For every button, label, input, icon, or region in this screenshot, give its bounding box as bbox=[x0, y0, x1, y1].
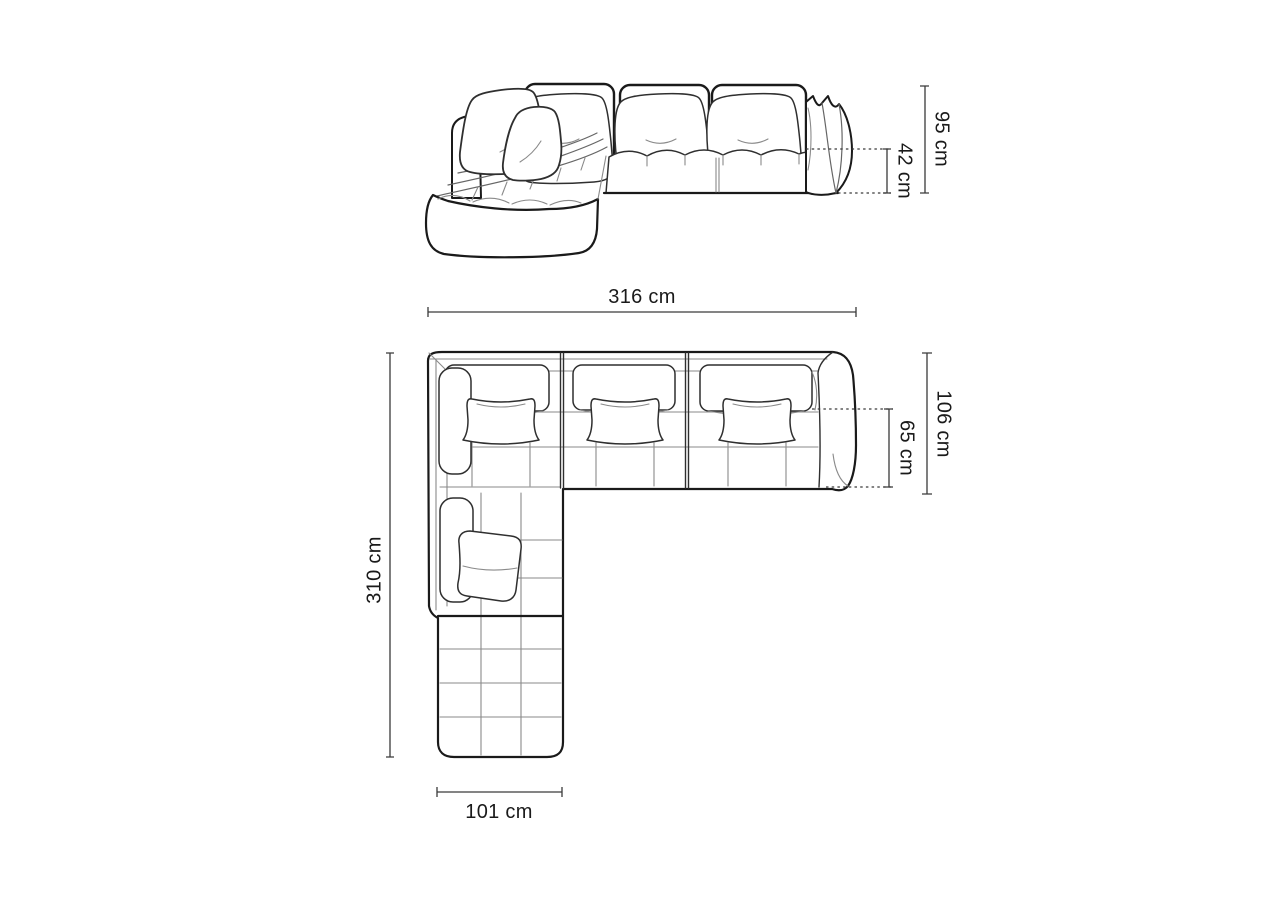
right-armrest bbox=[806, 96, 852, 195]
armrest-body bbox=[806, 96, 852, 195]
dimension-body-depth: 106 cm bbox=[922, 353, 955, 494]
seat-block bbox=[606, 150, 812, 193]
dimension-total-width: 316 cm bbox=[428, 286, 856, 317]
dimension-chaise-width: 101 cm bbox=[437, 787, 562, 823]
top-plan-view: 316 cm 310 cm 101 cm 65 cm 106 cm bbox=[363, 286, 954, 823]
dim-label-total-height: 95 cm bbox=[931, 111, 953, 167]
seat-cushions bbox=[604, 150, 838, 193]
diagram-canvas: 42 cm 95 cm bbox=[0, 0, 1280, 905]
dimension-seat-height: 42 cm bbox=[883, 143, 916, 199]
dim-label-seat-depth: 65 cm bbox=[896, 420, 918, 476]
dimension-total-depth: 310 cm bbox=[363, 353, 394, 757]
dim-label-seat-height: 42 cm bbox=[894, 143, 916, 199]
dimension-total-height: 95 cm bbox=[920, 86, 953, 193]
dim-label-total-width: 316 cm bbox=[608, 286, 675, 308]
dimension-seat-depth: 65 cm bbox=[884, 409, 918, 487]
plan-left-back-cushion bbox=[439, 368, 471, 474]
dim-label-chaise-width: 101 cm bbox=[465, 801, 532, 823]
sofa-dimension-diagram: 42 cm 95 cm bbox=[0, 0, 1280, 905]
barrel-pillow bbox=[719, 399, 795, 444]
dim-label-total-depth: 310 cm bbox=[363, 536, 385, 603]
barrel-pillow bbox=[587, 399, 663, 444]
dim-label-body-depth: 106 cm bbox=[933, 390, 955, 457]
chaise-pillow bbox=[458, 531, 521, 601]
barrel-pillow bbox=[463, 399, 539, 444]
front-elevation-view: 42 cm 95 cm bbox=[426, 84, 953, 257]
